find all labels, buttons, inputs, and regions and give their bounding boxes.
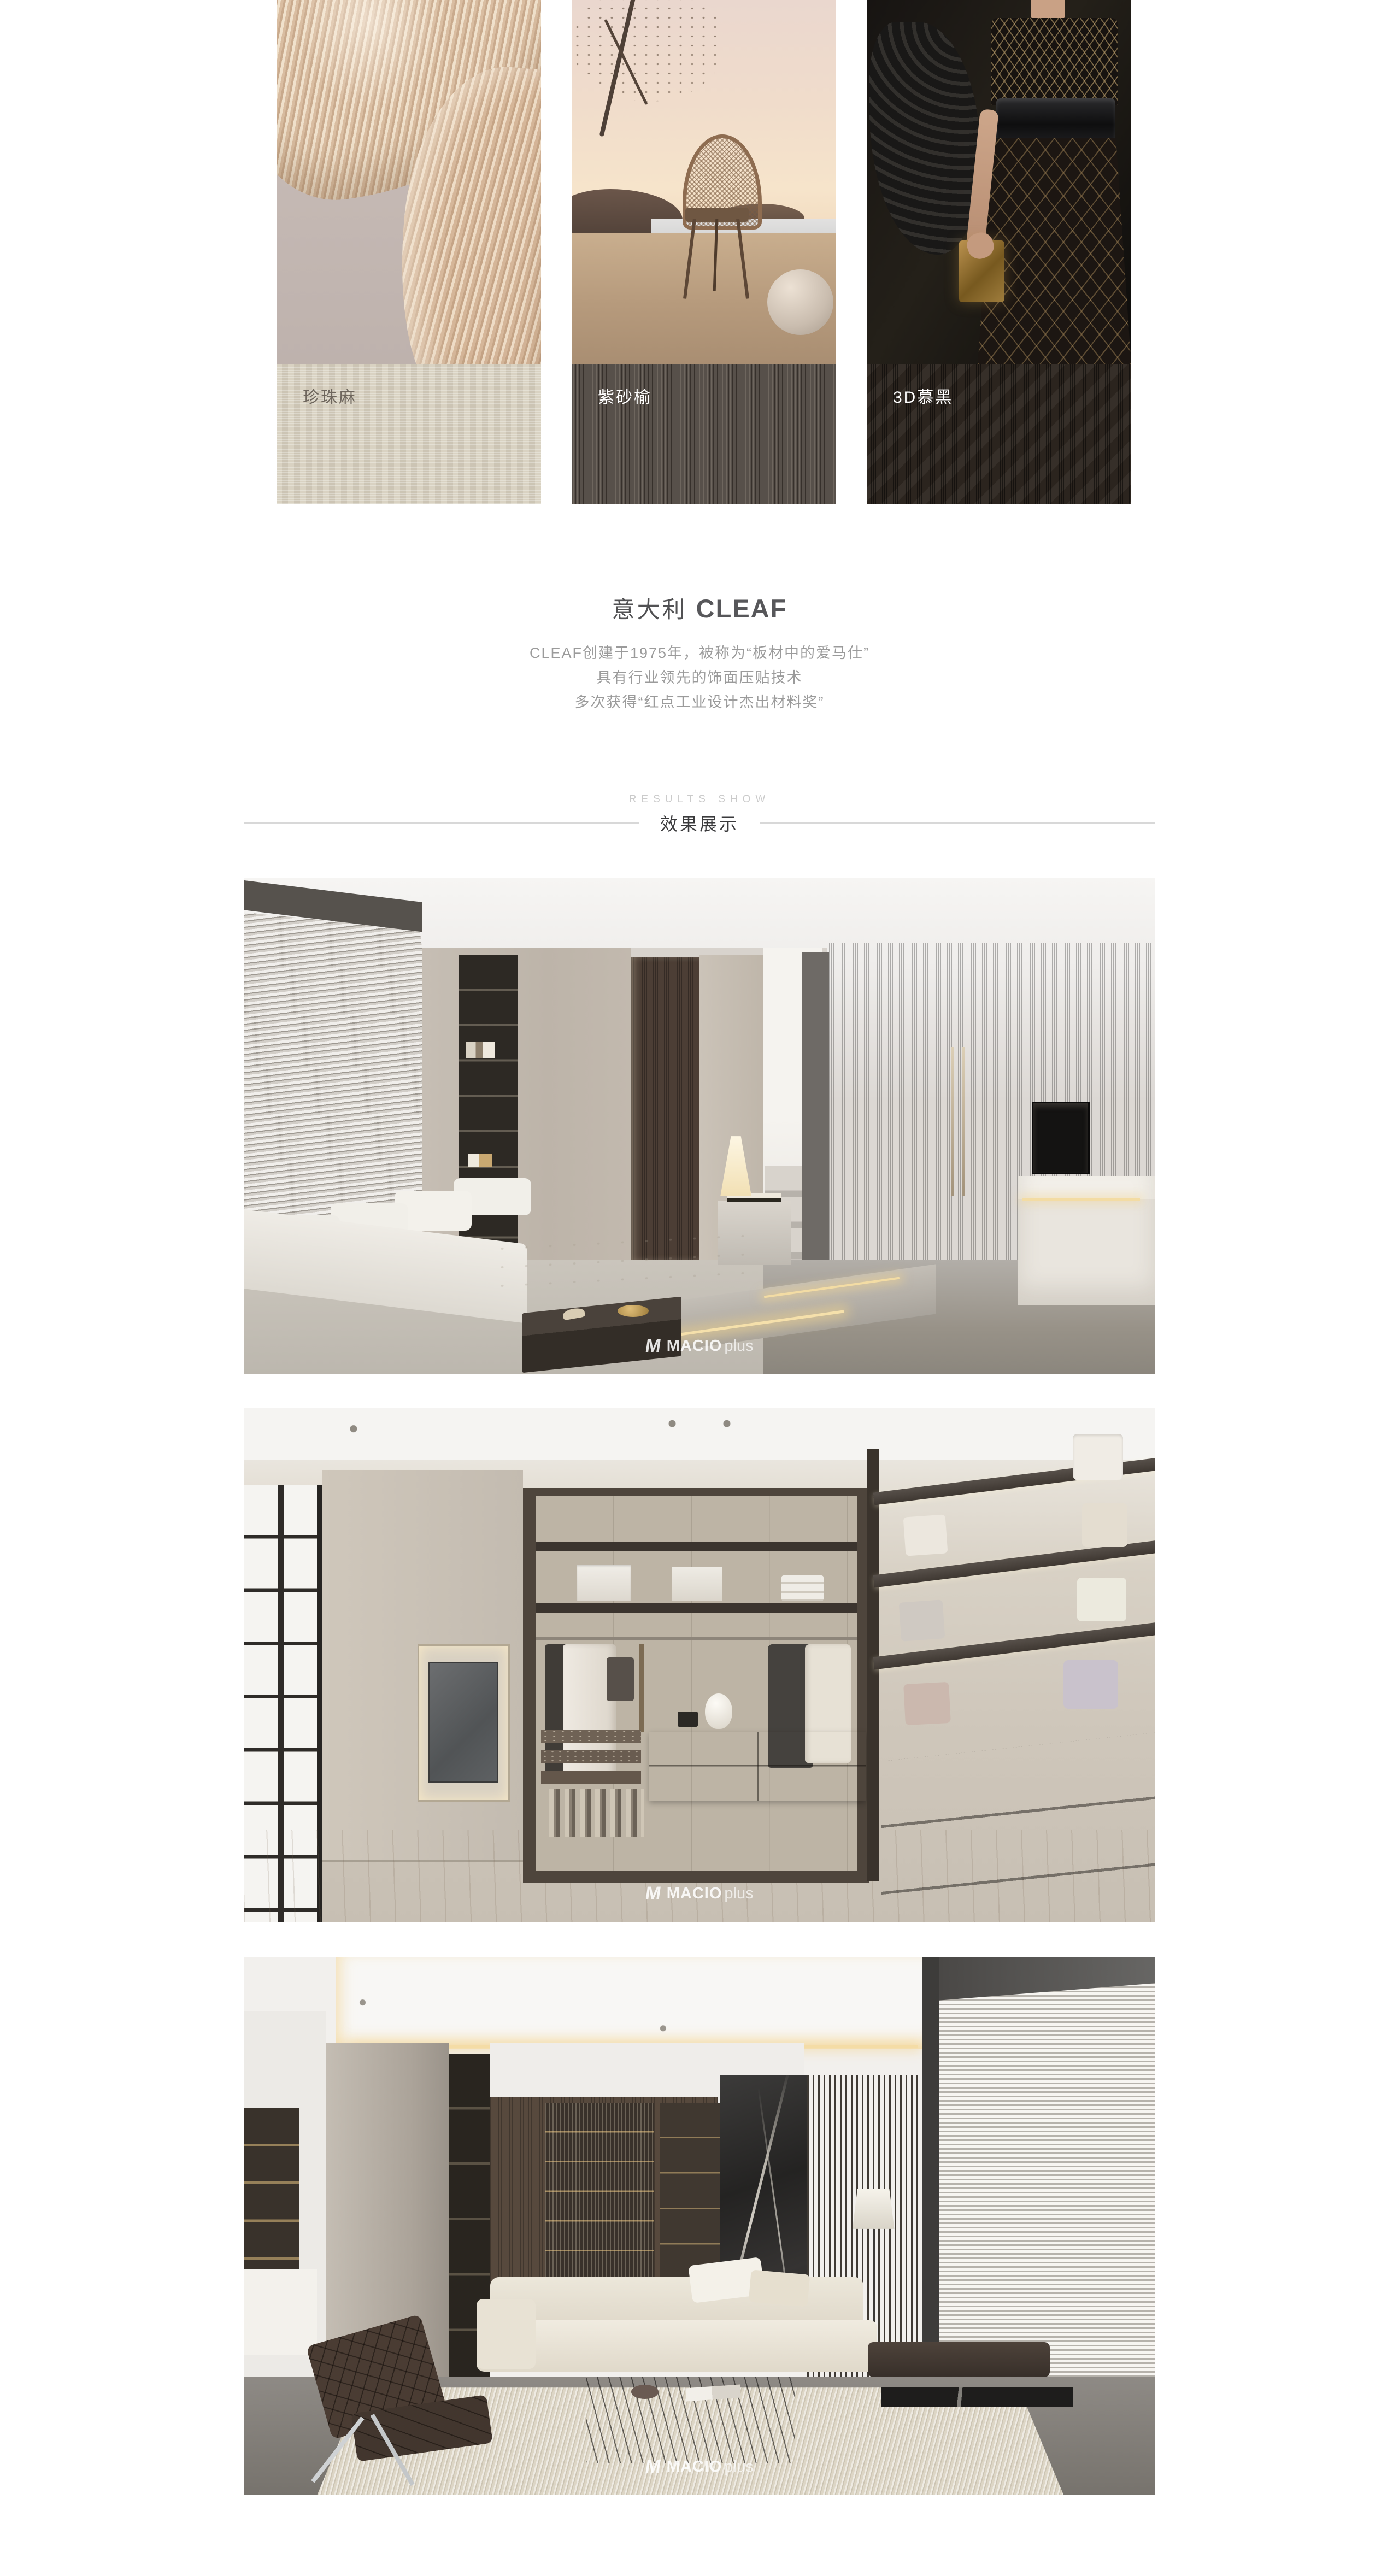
woven-handbag bbox=[607, 1657, 634, 1701]
sofa-pillow-beige bbox=[748, 2269, 810, 2307]
hanging-rail bbox=[536, 1637, 857, 1640]
floor-lamp-shade bbox=[853, 2189, 895, 2229]
macioplus-watermark: M MACIOplus bbox=[244, 1883, 1155, 1904]
watermark-suffix: plus bbox=[724, 1337, 753, 1355]
handbag-white-top bbox=[1073, 1434, 1123, 1480]
material-label: 3D慕黑 bbox=[893, 384, 953, 408]
fashion-photo bbox=[867, 0, 1131, 364]
satin-highlight bbox=[298, 0, 443, 109]
watermark-suffix: plus bbox=[724, 1885, 753, 1903]
render-living-room-2: M MACIOplus bbox=[244, 1957, 1155, 2495]
sofa-armrest-left bbox=[477, 2299, 536, 2369]
material-card-pearl-linen: 珍珠麻 bbox=[277, 0, 541, 504]
handbag-white-2 bbox=[903, 1515, 947, 1556]
wardrobe-handle-right bbox=[962, 1047, 965, 1196]
desert-chair-photo bbox=[572, 0, 836, 364]
lower-cabinet-run bbox=[881, 1733, 1155, 1900]
wardrobe-shelf-upper bbox=[536, 1542, 857, 1551]
macioplus-logo-m: M bbox=[644, 1883, 663, 1904]
watermark-suffix: plus bbox=[724, 2458, 753, 2476]
material-cards-section: 珍珠麻 紫砂榆 bbox=[277, 0, 1131, 504]
bench-marble-shelf bbox=[881, 2387, 1073, 2407]
results-eyebrow: RESULTS SHOW bbox=[244, 793, 1155, 805]
jewelry-tray-2 bbox=[541, 1750, 641, 1763]
watermark-name: MACIO bbox=[667, 2458, 722, 2476]
handbag-blush bbox=[903, 1682, 951, 1725]
shelf-books bbox=[466, 1042, 495, 1059]
macioplus-logo-m: M bbox=[644, 1336, 663, 1357]
jewelry-tray-3 bbox=[541, 1771, 641, 1784]
zisha-elm-swatch: 紫砂榆 bbox=[572, 364, 836, 504]
camera-decor bbox=[678, 1712, 698, 1727]
results-title-row: 效果展示 bbox=[244, 810, 1155, 836]
pearl-linen-photo bbox=[277, 0, 541, 364]
brand-intro-section: 意大利CLEAF CLEAF创建于1975年，被称为“板材中的爱马仕” 具有行业… bbox=[0, 591, 1399, 715]
material-label: 紫砂榆 bbox=[598, 384, 652, 408]
brand-line-2: 具有行业领先的饰面压贴技术 bbox=[0, 666, 1399, 690]
brand-description: CLEAF创建于1975年，被称为“板材中的爱马仕” 具有行业领先的饰面压贴技术… bbox=[0, 641, 1399, 715]
macioplus-watermark: M MACIOplus bbox=[244, 1336, 1155, 1357]
page: 珍珠麻 紫砂榆 bbox=[0, 0, 1399, 2576]
watermark-name: MACIO bbox=[667, 1885, 722, 1903]
brand-line-1: CLEAF创建于1975年，被称为“板材中的爱马仕” bbox=[0, 641, 1399, 666]
handbag-lavender bbox=[1063, 1660, 1118, 1709]
dining-shelves bbox=[244, 2108, 299, 2269]
3d-black-swatch: 3D慕黑 bbox=[867, 364, 1131, 504]
gray-partition-wall bbox=[802, 952, 829, 1260]
shelf-decor bbox=[468, 1154, 492, 1167]
render-living-room-1: M MACIOplus bbox=[244, 878, 1155, 1374]
material-card-zisha-elm: 紫砂榆 bbox=[572, 0, 836, 504]
brand-region: 意大利 bbox=[612, 597, 687, 622]
divider-line-right bbox=[760, 822, 1155, 824]
material-label: 珍珠麻 bbox=[303, 384, 357, 408]
walnut-recess-panel bbox=[631, 957, 699, 1260]
handbag-gray bbox=[898, 1599, 945, 1641]
macioplus-logo-m: M bbox=[644, 2456, 663, 2478]
storage-box-2 bbox=[672, 1567, 722, 1601]
ceiling-downlights bbox=[244, 1408, 1155, 1460]
handbag-white-3 bbox=[1077, 1578, 1126, 1621]
dining-table bbox=[244, 2269, 317, 2355]
macioplus-watermark: M MACIOplus bbox=[244, 2456, 1155, 2478]
pearl-linen-swatch: 珍珠麻 bbox=[277, 364, 541, 504]
stone-sphere bbox=[767, 269, 833, 335]
folded-clothes bbox=[781, 1575, 824, 1601]
handbag-cream bbox=[1082, 1503, 1127, 1547]
wardrobe-handle-left bbox=[951, 1047, 954, 1196]
table-bowl bbox=[631, 2385, 659, 2399]
leather-waist-band bbox=[996, 98, 1115, 142]
jewelry-tray-1 bbox=[541, 1730, 641, 1743]
cleaf-logo-text: CLEAF bbox=[696, 594, 787, 623]
drawer-cabinet bbox=[649, 1732, 866, 1801]
brand-line-3: 多次获得“红点工业设计杰出材料奖” bbox=[0, 690, 1399, 715]
results-title: 效果展示 bbox=[660, 810, 739, 836]
tv-screen bbox=[428, 1662, 498, 1783]
leather-bench bbox=[868, 2342, 1050, 2377]
counter-led-glow bbox=[1022, 1198, 1141, 1201]
render-walk-in-closet: M MACIOplus bbox=[244, 1408, 1155, 1922]
gold-bowl bbox=[618, 1305, 649, 1317]
divider-line-left bbox=[244, 822, 639, 824]
lattice-bodice bbox=[991, 18, 1118, 105]
sofa-seat bbox=[477, 2320, 877, 2371]
hanging-belt bbox=[639, 1644, 644, 1732]
built-in-oven bbox=[1032, 1102, 1090, 1174]
wardrobe-shelf-lower bbox=[536, 1603, 857, 1613]
material-card-3d-black: 3D慕黑 bbox=[867, 0, 1131, 504]
storage-box-1 bbox=[577, 1565, 631, 1601]
brand-title: 意大利CLEAF bbox=[0, 591, 1399, 625]
egg-lamp bbox=[705, 1693, 732, 1730]
watermark-name: MACIO bbox=[667, 1337, 722, 1355]
pants-rack bbox=[549, 1789, 644, 1837]
results-section-header: RESULTS SHOW 效果展示 bbox=[244, 793, 1155, 836]
island-counter bbox=[1018, 1176, 1155, 1305]
